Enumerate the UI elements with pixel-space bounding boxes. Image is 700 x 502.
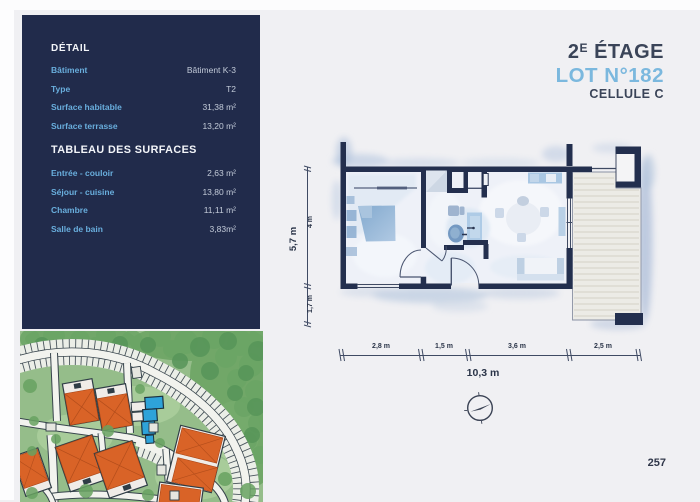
- svg-text:3,6 m: 3,6 m: [508, 343, 526, 350]
- svg-text:1,7 m: 1,7 m: [307, 295, 314, 313]
- svg-text:5,7 m: 5,7 m: [288, 227, 299, 251]
- svg-text:2,5 m: 2,5 m: [594, 343, 612, 350]
- svg-text:10,3 m: 10,3 m: [467, 367, 500, 379]
- svg-text:2,8 m: 2,8 m: [372, 343, 390, 350]
- svg-text:4 m: 4 m: [307, 216, 314, 228]
- svg-text:1,5 m: 1,5 m: [435, 343, 453, 350]
